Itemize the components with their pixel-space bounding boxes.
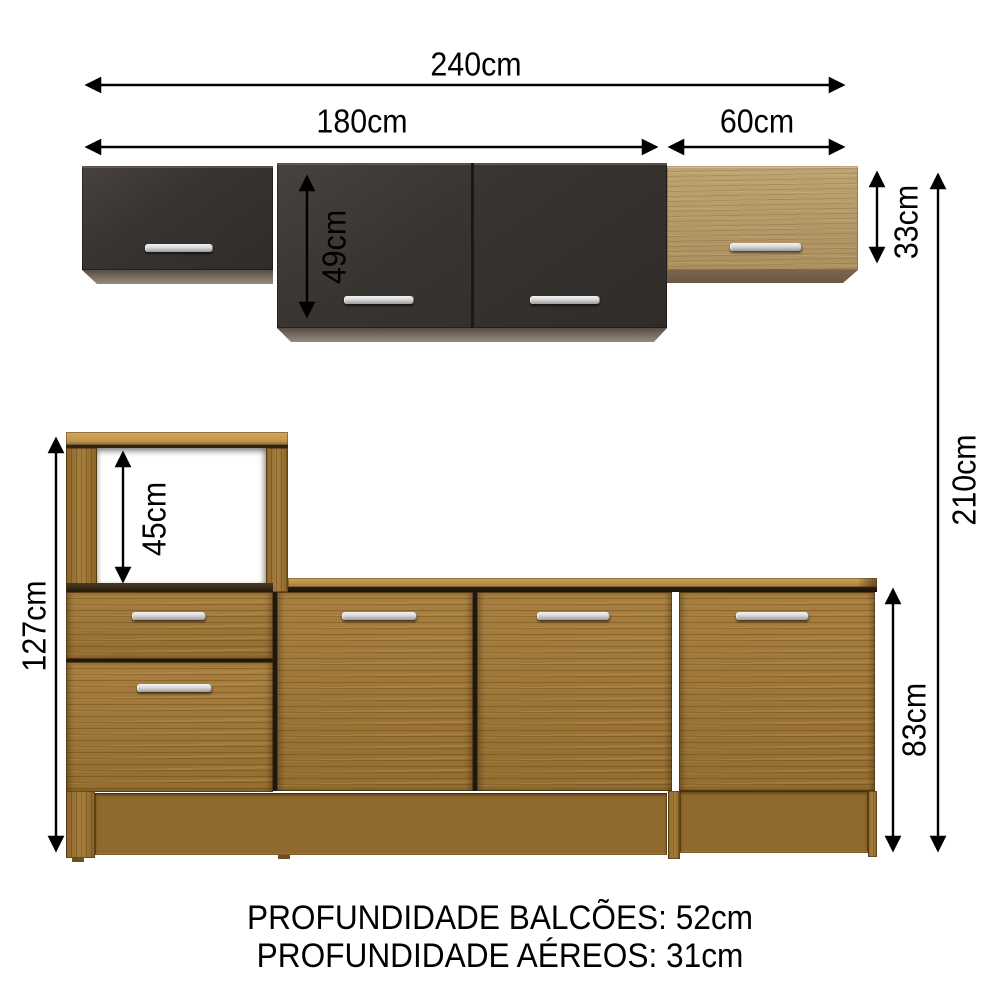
door-handle: [537, 612, 610, 620]
tall-cabinet-counter-band: [66, 583, 273, 592]
upper-right-cabinet-door: [667, 166, 858, 270]
tall-cabinet-right-stile: [266, 448, 288, 592]
drawer-handle: [137, 684, 212, 692]
plinth-main: [95, 793, 667, 855]
depth-balcoes-text: PROFUNDIDADE BALCÕES: 52cm: [35, 901, 965, 935]
tall-cabinet-drawer: [66, 592, 273, 659]
countertop: [288, 578, 877, 587]
door-handle: [730, 243, 802, 251]
door-handle: [530, 296, 600, 304]
upper-left-cabinet-bottom-panel: [82, 270, 273, 284]
tall-cabinet-left-stile: [66, 448, 97, 592]
base-door-left: [277, 592, 473, 791]
dim-127: 127cm: [18, 580, 51, 671]
tall-cabinet-top-slab: [66, 432, 288, 445]
upper-center-cabinet-bottom-panel: [277, 328, 667, 342]
tall-cabinet-side-panel: [66, 791, 95, 858]
upper-left-cabinet-door: [82, 166, 273, 270]
dim-45: 45cm: [138, 482, 171, 556]
right-module-right-leg: [868, 791, 877, 857]
upper-right-cabinet-bottom-panel: [667, 270, 858, 283]
base-door-center: [477, 592, 672, 791]
door-handle: [145, 244, 213, 252]
door-handle: [344, 296, 414, 304]
product-dimension-diagram: 240cm 180cm 60cm 49cm 33cm 210cm 127cm 4…: [0, 0, 1000, 1000]
upper-center-cabinet-door-seam: [471, 163, 474, 328]
door-handle: [342, 612, 417, 620]
plinth-foot: [278, 855, 290, 859]
dim-49: 49cm: [318, 210, 351, 284]
right-module-left-leg: [668, 791, 680, 859]
plinth-foot: [72, 858, 84, 862]
dim-210: 210cm: [948, 434, 981, 525]
plinth-right: [680, 791, 868, 853]
countertop-corner: [858, 578, 877, 587]
base-door-right: [679, 592, 875, 791]
oven-niche: [97, 448, 266, 583]
dim-83: 83cm: [898, 683, 931, 757]
door-handle: [736, 612, 809, 620]
dim-60: 60cm: [720, 105, 794, 138]
drawer-handle: [132, 612, 206, 620]
tall-cabinet-lower-drawer: [66, 662, 273, 792]
dim-180: 180cm: [316, 105, 407, 138]
dim-total-width: 240cm: [430, 48, 521, 81]
dim-33: 33cm: [890, 185, 923, 259]
depth-aereos-text: PROFUNDIDADE AÉREOS: 31cm: [35, 939, 965, 973]
